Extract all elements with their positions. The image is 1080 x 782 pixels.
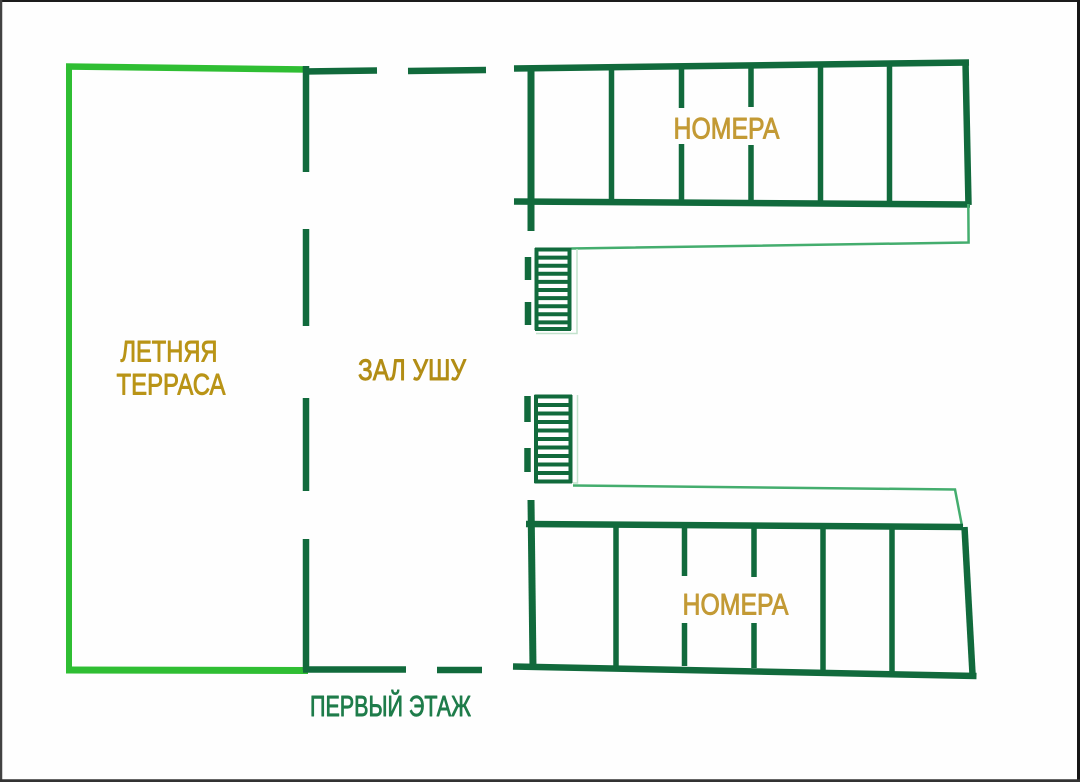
svg-text:ЛЕТНЯЯ: ЛЕТНЯЯ [121, 336, 218, 369]
svg-text:НОМЕРА: НОМЕРА [683, 589, 789, 622]
svg-text:ЗАЛ УШУ: ЗАЛ УШУ [358, 354, 467, 387]
svg-text:ПЕРВЫЙ ЭТАЖ: ПЕРВЫЙ ЭТАЖ [310, 689, 471, 723]
svg-text:НОМЕРА: НОМЕРА [674, 113, 780, 146]
svg-text:ТЕРРАСА: ТЕРРАСА [117, 369, 226, 402]
